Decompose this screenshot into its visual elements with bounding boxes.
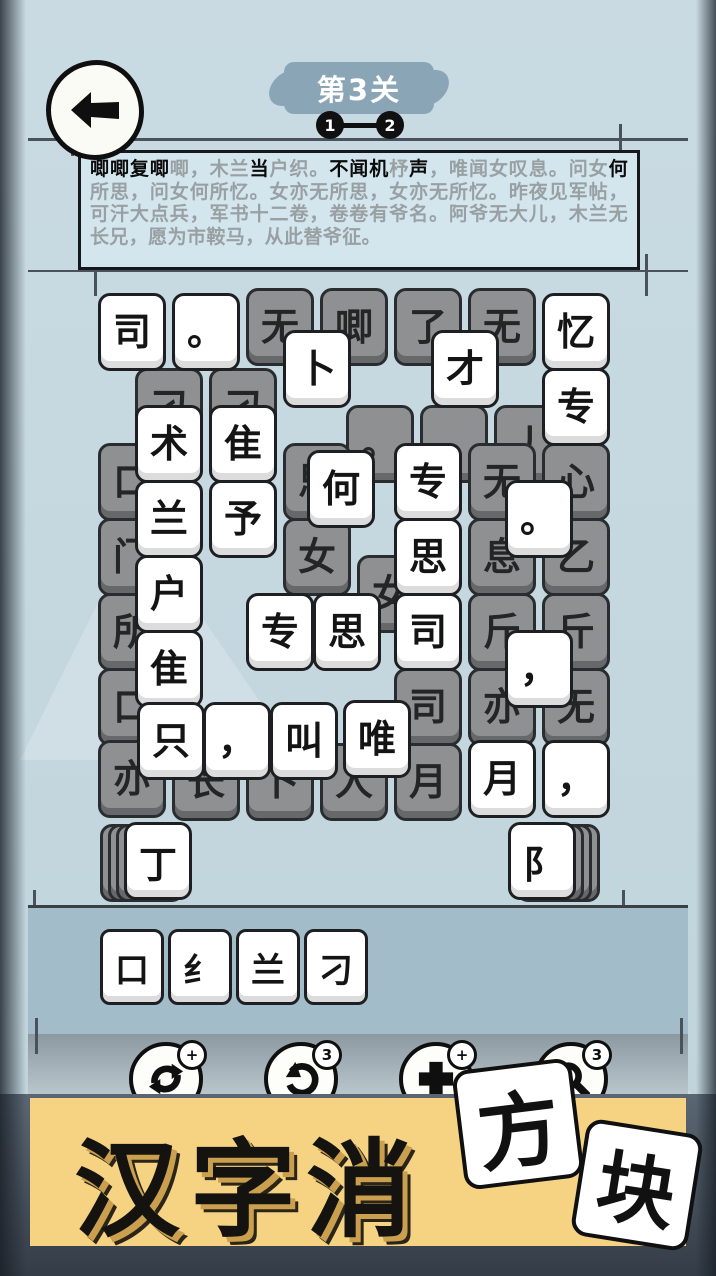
tray-tile[interactable]: 刁 (304, 929, 368, 1005)
tile-char: 方 (470, 1060, 566, 1188)
tile-char: 刁 (319, 943, 353, 992)
plus-icon (417, 1060, 455, 1098)
board-tile-active[interactable]: 何 (307, 450, 375, 528)
progress-step-1: 1 (316, 111, 344, 139)
tile-char: ， (218, 722, 256, 760)
tray-tile[interactable]: 兰 (236, 929, 300, 1005)
back-button[interactable] (46, 60, 144, 160)
game-screen: 第3关 1 2 唧唧复唧唧，木兰当户织。不闻机杼声，唯闻女叹息。问女何所思，问女… (0, 0, 716, 1276)
tile-char: 兰 (150, 500, 188, 538)
poem-panel: 唧唧复唧唧，木兰当户织。不闻机杼声，唯闻女叹息。问女何所思，问女何所忆。女亦无所… (78, 150, 640, 270)
tile-char: 户 (150, 575, 188, 613)
board-tile-active[interactable]: 专 (246, 593, 314, 671)
poem-segment-filled: 唧唧复唧 (90, 158, 170, 180)
board-tile-active[interactable]: 予 (209, 480, 277, 558)
poem-segment-filled: 声 (409, 158, 429, 180)
tray-tile[interactable]: 纟 (168, 929, 232, 1005)
poem-segment-empty: 杼 (389, 158, 409, 180)
tile-char: 思 (409, 538, 447, 576)
tile-char: 隹 (224, 425, 262, 463)
poem-segment-empty: 所思，问女何所忆。女亦无所思，女亦无所忆。昨夜见军帖，可汗大点兵，军书十二卷，卷… (90, 181, 628, 248)
tile-char: 忆 (557, 313, 595, 351)
tile-char: 何 (322, 470, 360, 508)
board-tile-active[interactable]: 思 (313, 593, 381, 671)
tray-tiles: 口纟兰刁 (28, 908, 688, 1036)
tile-char: 块 (590, 1124, 685, 1247)
board-tile-active[interactable]: 司 (98, 293, 166, 371)
tile-char: 纟 (183, 943, 217, 992)
board-tile-active[interactable]: 忆 (542, 293, 610, 371)
shuffle-icon (147, 1060, 185, 1098)
board-tile-active[interactable]: 思 (394, 518, 462, 596)
tile-char: 专 (409, 463, 447, 501)
title-tile-fang: 方 (451, 1057, 585, 1191)
poem-segment-filled: 不闻机 (329, 158, 389, 180)
game-title: 汉字消 (74, 1104, 422, 1258)
tile-char: 司 (409, 688, 447, 726)
board-tile-active[interactable]: 月 (468, 740, 536, 818)
undo-badge: 3 (312, 1040, 342, 1070)
tile-char: 司 (113, 313, 151, 351)
board-tile-active[interactable]: 卜 (283, 330, 351, 408)
board-tile-active[interactable]: 隹 (209, 405, 277, 483)
draw-stack-left[interactable]: 丁 (100, 822, 200, 902)
title-tile-kuai: 块 (569, 1117, 704, 1252)
divider-tick (680, 1018, 683, 1054)
stack-top-tile[interactable]: 丁 (124, 822, 192, 900)
tile-char: 予 (224, 500, 262, 538)
board-tile-active[interactable]: 司 (394, 593, 462, 671)
tile-char: 。 (520, 500, 558, 538)
board-tile-active[interactable]: 唯 (343, 700, 411, 778)
tile-char: 术 (150, 425, 188, 463)
tile-char: 月 (409, 763, 447, 801)
poem-text: 唧唧复唧唧，木兰当户织。不闻机杼声，唯闻女叹息。问女何所思，问女何所忆。女亦无所… (90, 158, 628, 248)
board-tile-active[interactable]: 叫 (270, 702, 338, 780)
tile-char: 。 (187, 313, 225, 351)
tile-char: 隹 (150, 650, 188, 688)
board-tile-active[interactable]: 隹 (135, 630, 203, 708)
magnify-badge: 3 (582, 1040, 612, 1070)
tile-char: 思 (328, 613, 366, 651)
back-arrow-icon (67, 90, 123, 130)
tile-char: 阝 (523, 834, 561, 889)
add-tile-badge: + (447, 1040, 477, 1070)
tile-char: 卜 (298, 350, 336, 388)
shuffle-badge: + (177, 1040, 207, 1070)
board-tile-active[interactable]: 才 (431, 330, 499, 408)
level-label: 第3关 (317, 67, 401, 109)
poem-segment-filled: 当 (250, 158, 270, 180)
tile-char: 专 (557, 388, 595, 426)
poem-segment-filled: 何 (609, 158, 628, 180)
board-tile-active[interactable]: 。 (172, 293, 240, 371)
level-progress: 1 2 (316, 111, 416, 143)
poem-segment-empty: ，唯闻女叹息。问女 (429, 158, 609, 180)
divider-tick (35, 1018, 38, 1054)
tile-char: 只 (152, 722, 190, 760)
tile-char: 丁 (139, 834, 177, 889)
tile-char: 叫 (285, 722, 323, 760)
board-tile-active[interactable]: 只 (137, 702, 205, 780)
poem-segment-empty: 唧，木兰 (170, 158, 250, 180)
draw-stack-right[interactable]: 阝 (504, 822, 604, 902)
tile-char: 专 (261, 613, 299, 651)
board-tile-active[interactable]: 专 (394, 443, 462, 521)
progress-step-2: 2 (376, 111, 404, 139)
tray-tile[interactable]: 口 (100, 929, 164, 1005)
board-tile-active[interactable]: 。 (505, 480, 573, 558)
undo-icon (282, 1060, 320, 1098)
tile-char: ， (520, 650, 558, 688)
tray: 口纟兰刁 (28, 905, 688, 1039)
title-banner: 汉字消 方 块 (30, 1098, 686, 1246)
tile-char: 女 (298, 538, 336, 576)
tile-char: 司 (409, 613, 447, 651)
tile-char: ， (557, 760, 595, 798)
poem-segment-empty: 户织。 (270, 158, 330, 180)
level-badge: 第3关 (284, 62, 434, 114)
tile-char: 口 (115, 943, 149, 992)
stack-top-tile[interactable]: 阝 (508, 822, 576, 900)
board-tile-active[interactable]: 户 (135, 555, 203, 633)
board-tile-active[interactable]: 专 (542, 368, 610, 446)
tile-char: 月 (483, 760, 521, 798)
tile-char: 唯 (358, 720, 396, 758)
tile-char: 才 (446, 350, 484, 388)
board-tile-active[interactable]: ， (203, 702, 271, 780)
board-tile-active[interactable]: 术 (135, 405, 203, 483)
board-tile-active[interactable]: ， (505, 630, 573, 708)
board-tile-active[interactable]: 兰 (135, 480, 203, 558)
board-tile-active[interactable]: ， (542, 740, 610, 818)
tile-char: 兰 (251, 943, 285, 992)
board-tile-blocked: 女 (283, 518, 351, 596)
